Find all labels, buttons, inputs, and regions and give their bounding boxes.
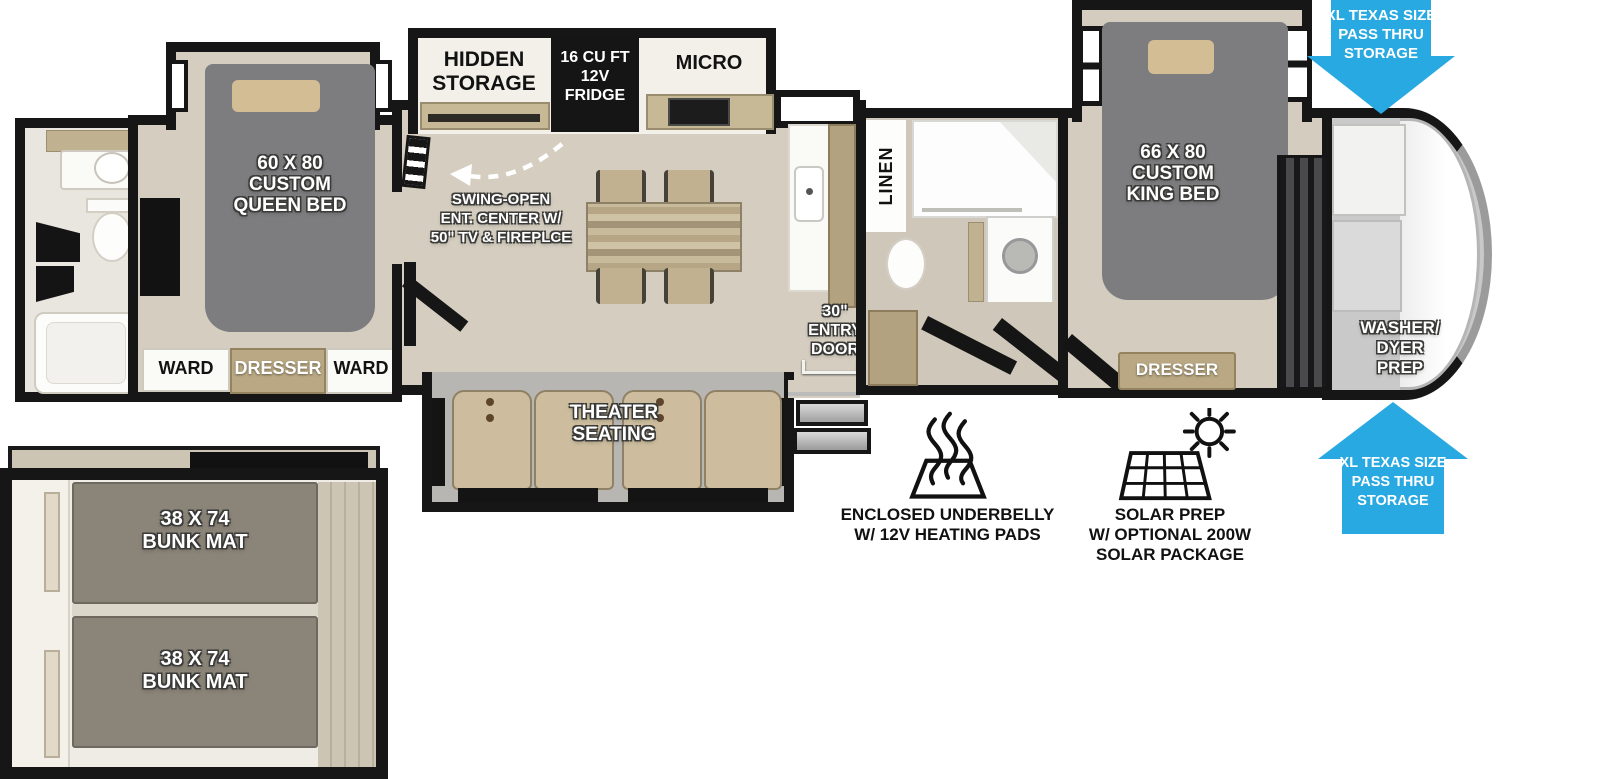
solar-prep-icon [1118,408,1238,506]
seat-button [486,398,494,406]
label-washer-dryer-prep: WASHER/DYERPREP [1340,318,1460,378]
toilet-icon [92,212,132,262]
label-ward-left: WARD [142,358,230,379]
floorplan-canvas: 60 X 80CUSTOMQUEEN BED WARD DRESSER WARD… [0,0,1600,779]
theater-floor-mat [628,488,768,503]
label-bunk-mat-bottom: 38 X 74BUNK MAT [72,648,318,694]
entry-door-dimension-bracket [802,360,860,374]
faucet-dot [806,188,813,195]
pantry-cabinet [828,124,856,308]
entry-step [793,428,871,454]
king-slide-window-left [1078,26,1104,106]
bunk-cabinet-column [12,480,70,767]
queen-slide-window-left [168,60,188,112]
label-king-bed: 66 X 80CUSTOMKING BED [1093,142,1253,205]
washer-door [1002,238,1038,274]
entry-threshold [788,392,860,396]
label-ward-right: WARD [326,358,396,379]
theater-seat [704,390,782,490]
bunk-floor-strip [318,482,376,767]
bunk-room-top-vent [190,452,368,468]
cooktop [668,98,730,126]
bar-stool [596,170,646,206]
label-theater-seating: THEATERSEATING [534,402,694,446]
label-swing-open: SWING-OPENENT. CENTER W/50" TV & FIREPLC… [415,190,587,247]
queen-slide-window-right [372,60,392,112]
entry-step [796,400,868,426]
seat-button [486,414,494,422]
rear-bath-counter [46,130,134,152]
bunk-mat-gap [72,604,318,616]
bedroom-step-post [404,262,416,346]
label-pass-thru-bottom: XL TEXAS SIZEPASS THRUSTORAGE [1328,454,1458,511]
mid-shower-bar [922,208,1022,212]
kitchen-window [774,90,860,128]
front-cabinet-lower [1332,220,1402,312]
queen-pillow [232,80,320,112]
kitchen-island [586,202,742,272]
king-wardrobe [1277,155,1329,390]
pass-thru-arrow-up: XL TEXAS SIZEPASS THRUSTORAGE [1318,402,1468,534]
bar-stool [596,268,646,304]
bar-stool [664,170,714,206]
swing-arrow-icon [440,128,580,198]
bath-cabinet [968,222,984,302]
label-dresser-front: DRESSER [1118,360,1236,380]
sink-icon [94,152,130,184]
entertainment-center-tv-strip [428,114,540,122]
label-dresser-rear: DRESSER [230,358,326,379]
label-bunk-mat-top: 38 X 74BUNK MAT [72,508,318,554]
pass-thru-arrow-down: XL TEXAS SIZEPASS THRUSTORAGE [1307,0,1455,114]
label-fridge: 16 CU FT12VFRIDGE [551,48,639,105]
stairs-cabinet [868,310,918,386]
label-hidden-storage: HIDDENSTORAGE [420,48,548,96]
queen-tv-cabinet [140,198,180,296]
heating-pads-icon [900,410,996,504]
rear-toilet-tank [86,198,134,213]
caption-solar: SOLAR PREPW/ OPTIONAL 200WSOLAR PACKAGE [1060,505,1280,565]
bar-stool [664,268,714,304]
bedroom-doorway-opening [392,192,404,264]
theater-window-left [432,398,445,486]
bunk-cabinet-door [44,492,60,592]
theater-floor-mat [458,488,598,503]
label-micro: MICRO [646,52,772,75]
caption-underbelly: ENCLOSED UNDERBELLYW/ 12V HEATING PADS [815,505,1080,545]
mid-toilet-icon [886,238,926,290]
label-pass-thru-top: XL TEXAS SIZEPASS THRUSTORAGE [1321,6,1441,63]
bunk-cabinet-door [44,650,60,758]
label-queen-bed: 60 X 80CUSTOMQUEEN BED [200,153,380,216]
shower-inner-line [46,322,126,384]
front-cabinet-upper [1332,124,1406,216]
king-pillow [1148,40,1214,74]
